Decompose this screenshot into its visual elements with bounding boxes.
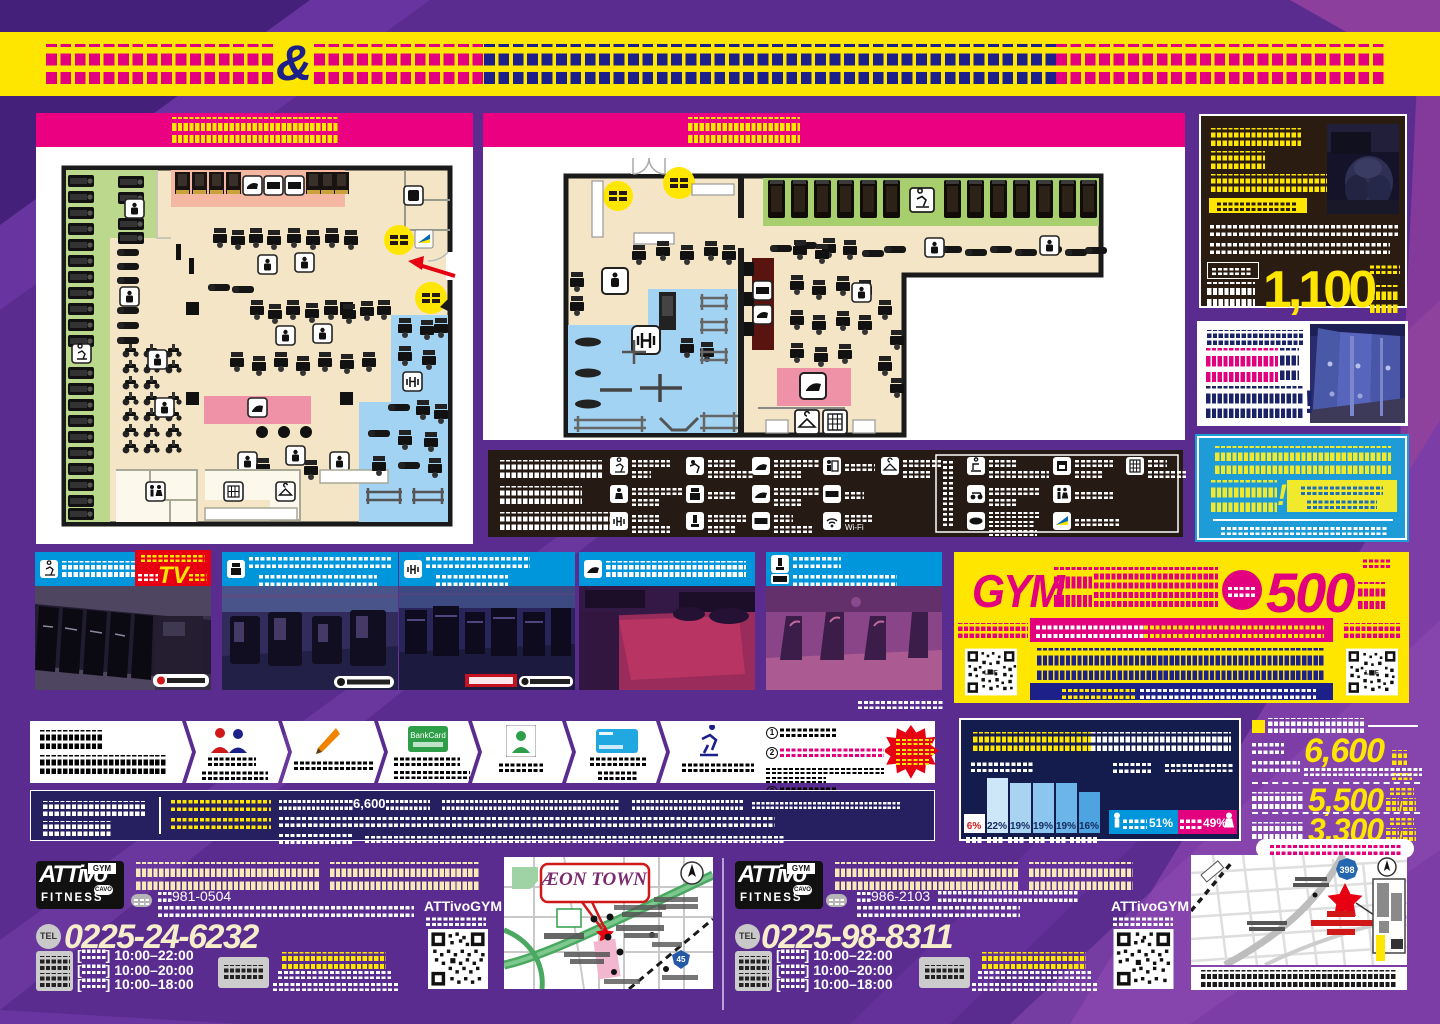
svg-text:19%: 19%: [1033, 821, 1053, 832]
svg-text:51%: 51%: [1149, 816, 1173, 830]
svg-text:19%: 19%: [1010, 821, 1030, 832]
svg-text:45: 45: [677, 955, 686, 964]
svg-text:16%: 16%: [1079, 821, 1099, 832]
svg-text:BankCard: BankCard: [410, 731, 446, 740]
svg-text:22%: 22%: [987, 821, 1007, 832]
svg-text:6%: 6%: [967, 821, 982, 832]
svg-text:49%: 49%: [1203, 816, 1227, 830]
svg-text:LINE: LINE: [1365, 671, 1379, 677]
svg-text:398: 398: [1339, 865, 1354, 875]
svg-text:LINE: LINE: [984, 671, 998, 677]
svg-text:19%: 19%: [1056, 821, 1076, 832]
svg-text:ÆON TOWN: ÆON TOWN: [539, 869, 648, 890]
